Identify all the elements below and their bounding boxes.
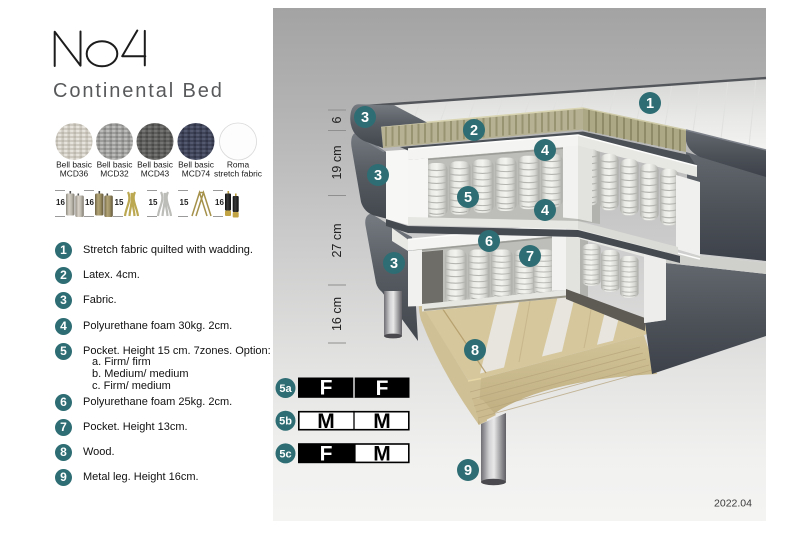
svg-text:9: 9 <box>464 463 472 479</box>
svg-text:M: M <box>373 443 391 466</box>
svg-text:2022.04: 2022.04 <box>714 498 752 510</box>
svg-text:3: 3 <box>390 256 398 272</box>
svg-text:2: 2 <box>470 123 478 139</box>
svg-text:5b: 5b <box>279 416 292 428</box>
svg-text:7: 7 <box>526 249 534 265</box>
svg-text:27 cm: 27 cm <box>330 223 344 257</box>
svg-text:F: F <box>320 377 333 400</box>
svg-text:16 cm: 16 cm <box>330 297 344 331</box>
svg-text:F: F <box>320 443 333 466</box>
svg-text:3: 3 <box>361 110 369 126</box>
svg-text:1: 1 <box>646 96 654 112</box>
svg-text:F: F <box>376 377 389 400</box>
svg-text:6: 6 <box>485 234 493 250</box>
svg-text:5a: 5a <box>279 383 292 395</box>
svg-text:M: M <box>373 410 391 433</box>
svg-text:4: 4 <box>541 203 549 219</box>
svg-text:4: 4 <box>541 143 549 159</box>
svg-text:5c: 5c <box>279 448 291 460</box>
svg-text:8: 8 <box>471 343 479 359</box>
svg-text:5: 5 <box>464 190 472 206</box>
svg-text:M: M <box>317 410 335 433</box>
svg-text:6: 6 <box>330 116 344 123</box>
svg-text:19 cm: 19 cm <box>330 145 344 179</box>
svg-text:3: 3 <box>374 168 382 184</box>
